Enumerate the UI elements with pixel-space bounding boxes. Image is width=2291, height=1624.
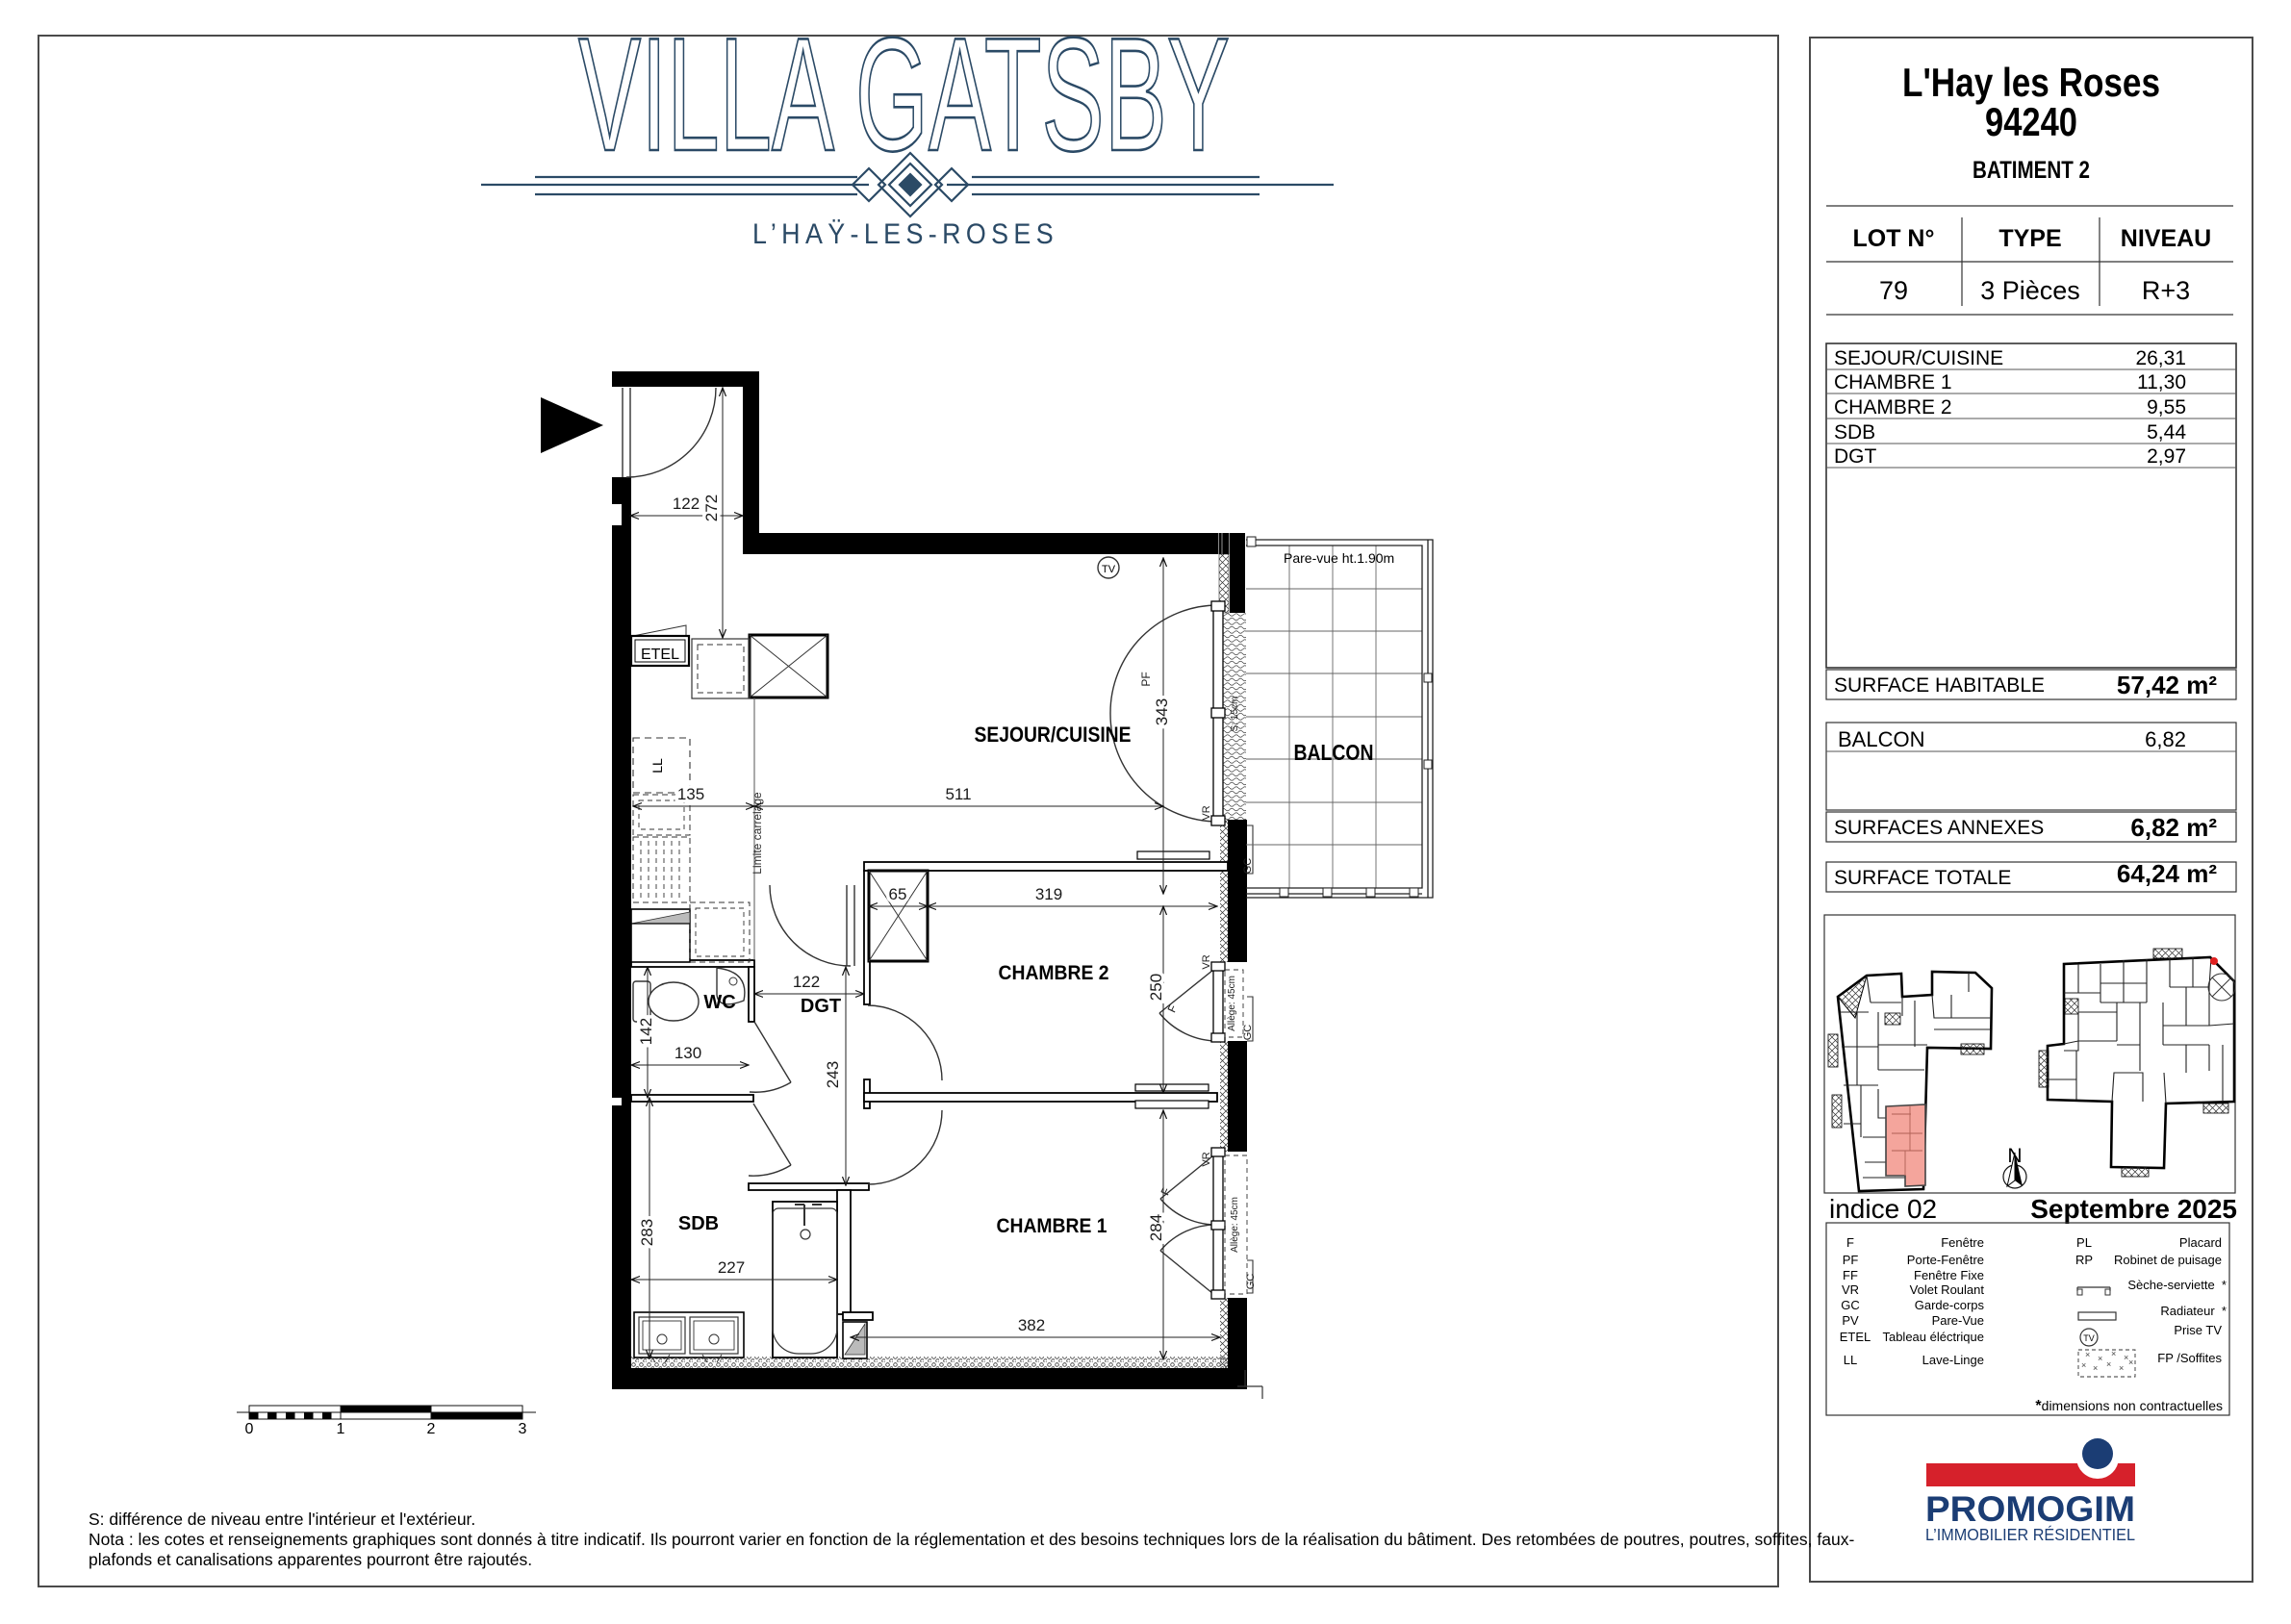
svg-text:Nota : les cotes et renseignem: Nota : les cotes et renseignements graph…	[89, 1530, 1854, 1549]
svg-text:250: 250	[1147, 974, 1165, 1001]
svg-text:VR: VR	[1201, 805, 1212, 820]
svg-text:L’IMMOBILIER RÉSIDENTIEL: L’IMMOBILIER RÉSIDENTIEL	[1925, 1525, 2135, 1544]
svg-text:TV: TV	[1102, 564, 1116, 575]
svg-text:Limite carrelage: Limite carrelage	[751, 792, 764, 875]
svg-text:79: 79	[1879, 276, 1908, 305]
svg-text:64,24 m²: 64,24 m²	[2117, 859, 2217, 888]
svg-text:3: 3	[519, 1421, 527, 1437]
svg-text:Septembre 2025: Septembre 2025	[2030, 1194, 2237, 1224]
svg-text:Fenêtre Fixe: Fenêtre Fixe	[1914, 1268, 1984, 1282]
svg-text:PL: PL	[2076, 1235, 2092, 1250]
svg-text:3 Pièces: 3 Pièces	[1980, 276, 2080, 305]
svg-text:SEJOUR/CUISINE: SEJOUR/CUISINE	[975, 723, 1132, 747]
svg-text:*dimensions non contractuelles: *dimensions non contractuelles	[2035, 1398, 2223, 1414]
svg-text:9,55: 9,55	[2147, 396, 2186, 419]
svg-text:343: 343	[1153, 698, 1171, 725]
svg-text:57,42 m²: 57,42 m²	[2117, 671, 2217, 699]
svg-text:VR: VR	[1201, 1152, 1212, 1166]
svg-text:283: 283	[638, 1219, 656, 1246]
svg-text:Allège: 45cm: Allège: 45cm	[1230, 1197, 1240, 1253]
svg-text:Robinet de puisage: Robinet de puisage	[2114, 1253, 2222, 1267]
svg-text:×: ×	[2093, 1363, 2098, 1373]
svg-text:Sèche-serviette *: Sèche-serviette *	[2127, 1278, 2227, 1292]
svg-text:Porte-Fenêtre: Porte-Fenêtre	[1907, 1253, 1984, 1267]
svg-text:PROMOGIM: PROMOGIM	[1925, 1489, 2135, 1529]
svg-text:×: ×	[2128, 1358, 2133, 1367]
svg-text:ETEL: ETEL	[641, 647, 679, 663]
svg-text:1: 1	[337, 1421, 345, 1437]
svg-text:Tableau éléctrique: Tableau éléctrique	[1882, 1330, 1984, 1344]
svg-text:319: 319	[1035, 885, 1062, 903]
svg-text:CHAMBRE 1: CHAMBRE 1	[1834, 371, 1952, 393]
svg-text:RP: RP	[2075, 1253, 2093, 1267]
svg-text:BATIMENT 2: BATIMENT 2	[1973, 157, 2090, 184]
svg-text:LOT N°: LOT N°	[1853, 225, 1935, 252]
svg-text:BALCON: BALCON	[1838, 727, 1924, 751]
svg-text:VR: VR	[1842, 1282, 1859, 1297]
svg-text:×: ×	[2085, 1350, 2090, 1359]
svg-text:SEJOUR/CUISINE: SEJOUR/CUISINE	[1834, 347, 2003, 369]
svg-text:FP /Soffites: FP /Soffites	[2157, 1351, 2222, 1365]
svg-text:122: 122	[673, 495, 700, 513]
svg-text:×: ×	[2106, 1359, 2111, 1369]
svg-text:Pare-vue ht.1.90m: Pare-vue ht.1.90m	[1284, 550, 1394, 566]
svg-text:DGT: DGT	[1834, 445, 1877, 468]
svg-text:Placard: Placard	[2179, 1235, 2222, 1250]
svg-text:2: 2	[427, 1421, 436, 1437]
svg-text:Prise TV: Prise TV	[2174, 1323, 2222, 1337]
svg-text:GC: GC	[1242, 1025, 1254, 1041]
svg-text:CHAMBRE 2: CHAMBRE 2	[1834, 396, 1952, 419]
svg-text:Volet Roulant: Volet Roulant	[1910, 1282, 1985, 1297]
svg-text:S: 15cm: S: 15cm	[1230, 697, 1240, 732]
svg-text:122: 122	[793, 973, 820, 991]
svg-text:PF: PF	[1843, 1253, 1859, 1267]
svg-text:PV: PV	[1842, 1313, 1859, 1328]
svg-text:R+3: R+3	[2142, 276, 2190, 305]
svg-text:Garde-corps: Garde-corps	[1915, 1298, 1985, 1312]
svg-text:GC: GC	[1242, 858, 1254, 875]
svg-text:×: ×	[2119, 1363, 2124, 1373]
svg-text:94240: 94240	[1985, 99, 2077, 144]
svg-text:LL: LL	[649, 758, 665, 774]
svg-text:×: ×	[2111, 1349, 2116, 1358]
svg-text:6,82 m²: 6,82 m²	[2130, 813, 2217, 842]
svg-text:NIVEAU: NIVEAU	[2121, 225, 2211, 252]
svg-text:×: ×	[2081, 1360, 2086, 1370]
svg-text:Fenêtre: Fenêtre	[1941, 1235, 1984, 1250]
svg-text:TV: TV	[2083, 1333, 2095, 1343]
svg-text:Allège: 45cm: Allège: 45cm	[1227, 976, 1237, 1031]
svg-text:CHAMBRE 2: CHAMBRE 2	[999, 962, 1109, 984]
svg-text:GC: GC	[1245, 1274, 1257, 1290]
svg-text:VILLA GATSBY: VILLA GATSBY	[578, 4, 1230, 185]
svg-text:142: 142	[637, 1018, 655, 1045]
svg-text:plafonds et canalisations appa: plafonds et canalisations apparentes pou…	[89, 1550, 532, 1569]
svg-text:FF: FF	[1843, 1268, 1858, 1282]
svg-text:272: 272	[702, 495, 721, 521]
svg-text:BALCON: BALCON	[1294, 740, 1374, 765]
svg-text:L’HAŸ-LES-ROSES: L’HAŸ-LES-ROSES	[752, 218, 1058, 250]
svg-text:×: ×	[2098, 1354, 2102, 1363]
svg-text:11,30: 11,30	[2137, 371, 2186, 393]
svg-text:F: F	[1846, 1235, 1854, 1250]
svg-text:382: 382	[1018, 1316, 1045, 1334]
svg-text:284: 284	[1147, 1214, 1165, 1241]
svg-text:0: 0	[245, 1421, 254, 1437]
svg-text:6,82: 6,82	[2145, 727, 2186, 751]
svg-text:SURFACE HABITABLE: SURFACE HABITABLE	[1834, 674, 2045, 697]
svg-text:S: différence de niveau entre: S: différence de niveau entre l'intérieu…	[89, 1510, 475, 1529]
svg-text:ETEL: ETEL	[1840, 1330, 1871, 1344]
svg-text:26,31: 26,31	[2135, 347, 2186, 369]
svg-text:WC: WC	[703, 992, 735, 1013]
svg-text:SDB: SDB	[678, 1213, 719, 1234]
svg-text:SDB: SDB	[1834, 421, 1875, 444]
svg-text:VR: VR	[1201, 954, 1212, 969]
svg-text:GC: GC	[1841, 1298, 1860, 1312]
svg-text:PF: PF	[1139, 672, 1153, 686]
svg-text:CHAMBRE 1: CHAMBRE 1	[997, 1215, 1107, 1237]
svg-text:DGT: DGT	[801, 996, 841, 1017]
svg-text:SURFACES ANNEXES: SURFACES ANNEXES	[1834, 817, 2044, 839]
svg-text:Lave-Linge: Lave-Linge	[1922, 1353, 1984, 1367]
svg-text:TYPE: TYPE	[1998, 225, 2061, 252]
svg-text:65: 65	[889, 885, 907, 903]
svg-text:SURFACE TOTALE: SURFACE TOTALE	[1834, 867, 2011, 889]
svg-text:135: 135	[677, 785, 704, 803]
svg-text:243: 243	[824, 1061, 842, 1088]
svg-text:indice 02: indice 02	[1829, 1194, 1937, 1224]
svg-text:LL: LL	[1844, 1353, 1857, 1367]
svg-text:511: 511	[945, 785, 971, 803]
svg-text:Pare-Vue: Pare-Vue	[1932, 1313, 1984, 1328]
svg-text:L'Hay les Roses: L'Hay les Roses	[1902, 60, 2160, 105]
svg-text:5,44: 5,44	[2147, 421, 2186, 444]
svg-text:Radiateur *: Radiateur *	[2160, 1304, 2227, 1318]
svg-text:2,97: 2,97	[2147, 445, 2186, 468]
svg-text:227: 227	[718, 1258, 745, 1277]
svg-text:130: 130	[675, 1044, 701, 1062]
